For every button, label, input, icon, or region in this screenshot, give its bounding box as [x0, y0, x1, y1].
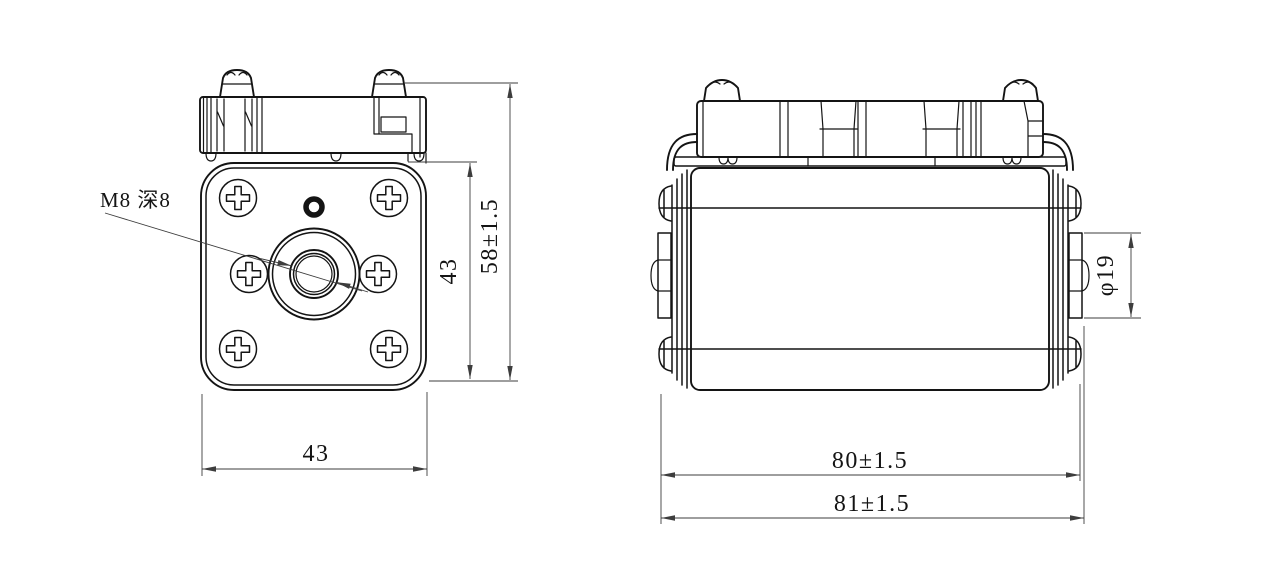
front-thread-hole-minor	[296, 256, 332, 292]
side-block-corner-step	[1024, 101, 1043, 157]
front-height-dim-label: 43	[436, 258, 462, 285]
side-handle-right	[1043, 134, 1073, 170]
side-terminal-block	[667, 80, 1073, 170]
side-left-screw-head-bottom	[659, 337, 671, 371]
front-screw-bottom-right	[371, 331, 408, 368]
technical-drawing: M8 深8 43 43 58±1.5	[0, 0, 1287, 576]
side-right-flange-ribs	[1053, 170, 1068, 388]
front-bracket-notch	[381, 117, 406, 132]
front-screw-mid-right	[360, 256, 397, 293]
front-screw-top-right	[371, 180, 408, 217]
side-block-pocket-1	[820, 101, 857, 157]
front-height-dimension: 43	[408, 162, 477, 379]
side-left-terminal-boss	[658, 233, 671, 318]
side-band-ticks	[808, 157, 935, 166]
side-left-flange-ribs	[672, 170, 687, 388]
side-left-terminal-dome	[651, 260, 671, 291]
front-band-divider	[257, 97, 262, 153]
side-view: φ19 80±1.5 81±1.5	[651, 80, 1141, 524]
front-band-tabs	[206, 153, 424, 161]
side-block-pocket-2	[923, 101, 960, 157]
front-overall-height-dim-label: 58±1.5	[477, 198, 503, 274]
front-screw-top-left	[220, 180, 257, 217]
thread-callout: M8 深8	[100, 188, 368, 292]
side-left-flange	[651, 170, 687, 388]
front-terminal-assembly	[200, 70, 426, 163]
side-band-tabs	[719, 157, 1021, 164]
front-thread-hole	[290, 250, 338, 298]
side-handle-left	[667, 134, 697, 170]
side-right-terminal-dome	[1069, 260, 1089, 291]
overall-length-dimension: 81±1.5	[661, 326, 1084, 524]
terminal-diameter-dimension: φ19	[1084, 233, 1141, 318]
side-left-screw-head	[659, 186, 671, 221]
front-band-left-ribs	[204, 97, 212, 153]
side-top-screw-left	[704, 80, 740, 101]
side-base-band	[674, 157, 1066, 166]
thread-callout-label: M8 深8	[100, 188, 171, 212]
side-body	[659, 168, 1081, 390]
overall-length-dim-label: 81±1.5	[834, 491, 910, 517]
side-right-terminal-boss	[1069, 233, 1082, 318]
front-center-boss-inner	[273, 233, 356, 316]
front-view: M8 深8 43 43 58±1.5	[100, 70, 518, 476]
drawing-sheet: M8 深8 43 43 58±1.5	[0, 0, 1287, 576]
front-screw-bottom-left	[220, 331, 257, 368]
front-width-dim-label: 43	[303, 441, 330, 467]
body-length-dim-label: 80±1.5	[832, 448, 908, 474]
front-band-clips	[217, 99, 252, 151]
side-right-screw-head	[1069, 186, 1081, 221]
terminal-diameter-dim-label: φ19	[1093, 254, 1119, 296]
front-pilot-hole	[306, 199, 322, 215]
front-width-dimension: 43	[202, 392, 427, 476]
front-screws	[220, 180, 408, 368]
side-right-screw-head-bottom	[1069, 337, 1081, 371]
side-body-bands	[659, 208, 1081, 349]
front-center-boss	[269, 229, 360, 320]
side-body-outline	[691, 168, 1049, 390]
front-thread-hole-ring	[294, 254, 335, 295]
